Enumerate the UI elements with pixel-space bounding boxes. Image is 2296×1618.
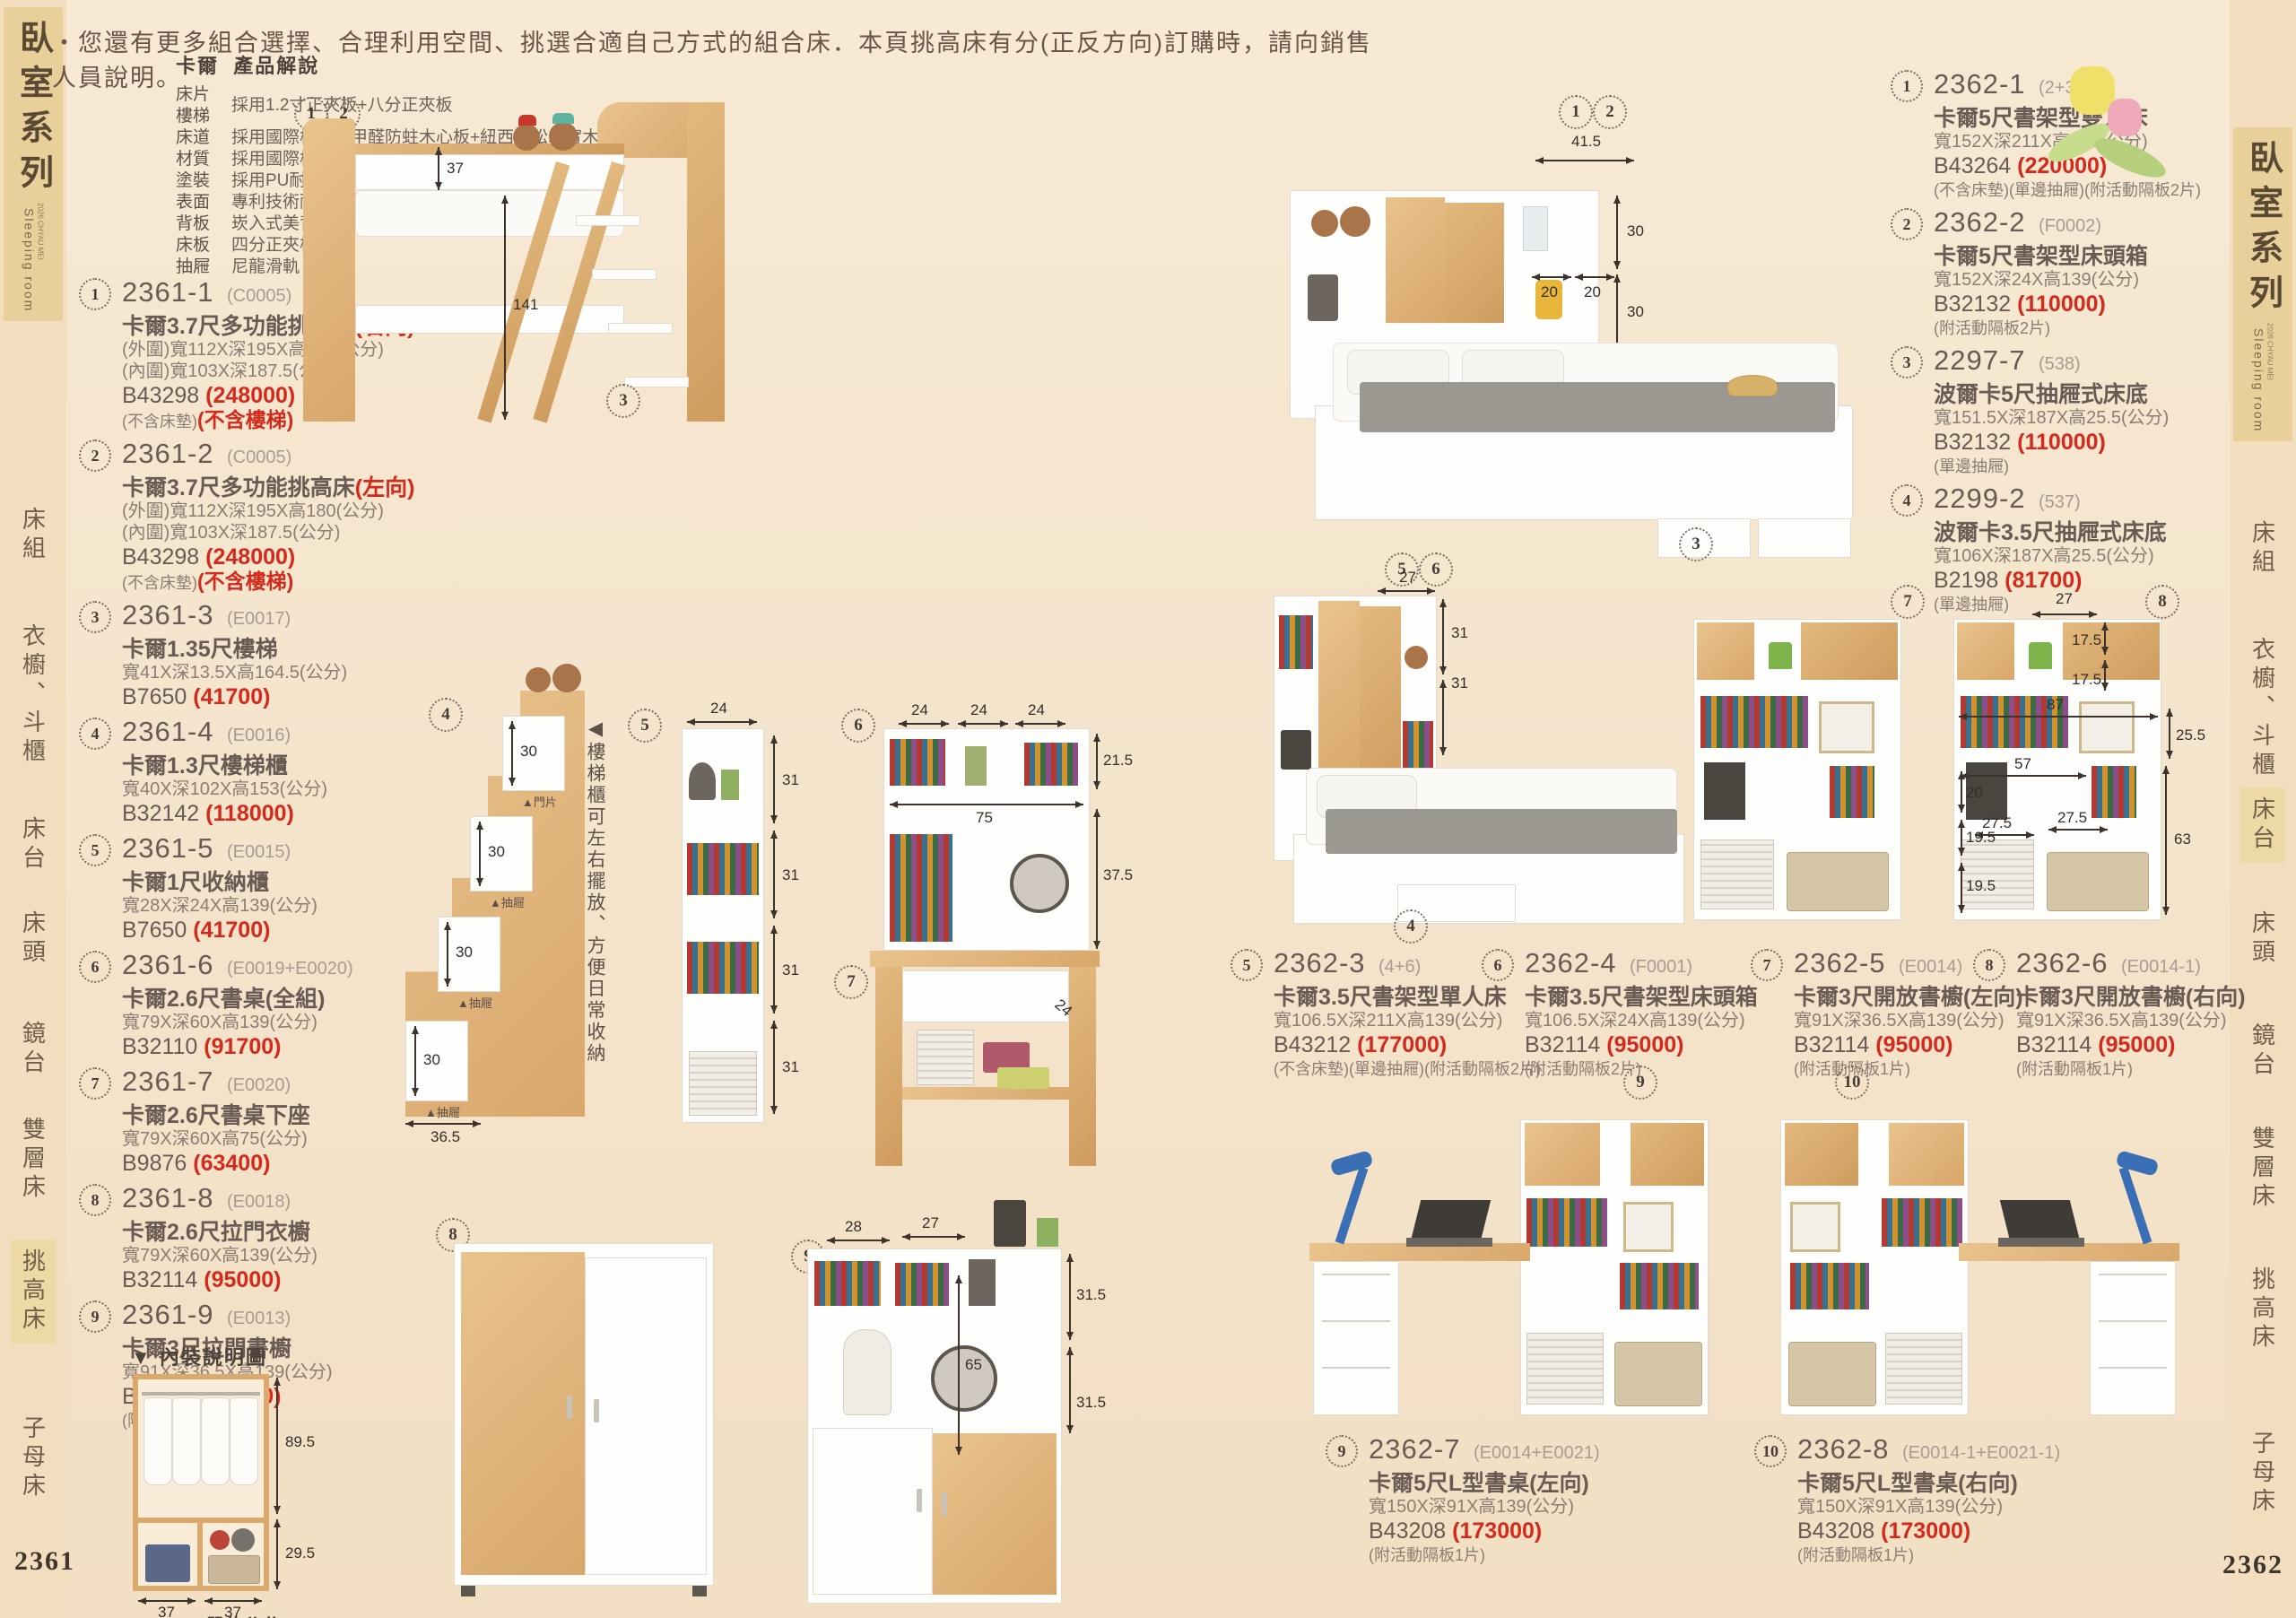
dim-arrow	[1096, 809, 1098, 949]
dim-arrow	[773, 926, 775, 1013]
product-code-line: 2361-3 (E0017)	[122, 599, 347, 637]
ladder-step	[576, 215, 640, 226]
product-ref: (C0005)	[227, 286, 291, 306]
series-subtitle: Sleeping room	[2252, 328, 2266, 432]
sidebar-item-6: 雙層床	[2241, 1117, 2285, 1221]
page-number-left: 2361	[14, 1546, 75, 1577]
laptop-base	[1998, 1238, 2084, 1247]
dim-label: 30	[1627, 303, 1644, 321]
desk-drawer	[902, 970, 1069, 1022]
dim-arrow	[899, 723, 949, 725]
product-item: 2 2361-2 (C0005) 卡爾3.7尺多功能挑高床(左向) (外圍)寬1…	[79, 438, 474, 594]
dim-label: 31	[782, 771, 799, 789]
dim-arrow	[479, 822, 481, 886]
headboard-sliding-door	[1318, 601, 1360, 791]
product-code: 2361-4	[122, 716, 214, 747]
plush-toy	[552, 664, 581, 692]
storage-basket	[1700, 839, 1774, 909]
books	[2092, 766, 2136, 818]
product-code-line: 2297-7 (538)	[1934, 344, 2169, 382]
dim-arrow	[2104, 660, 2106, 691]
drawer-pedestal	[2090, 1261, 2176, 1415]
dim-label: 19.5	[1966, 829, 1996, 847]
dim-label: 30	[488, 843, 505, 861]
product-name: 波爾卡5尺抽屜式床底	[1934, 382, 2169, 407]
headboard-sliding-door	[1386, 197, 1445, 323]
plant	[1037, 1218, 1058, 1247]
ornament	[969, 1259, 996, 1306]
product-dimensions: 寬152X深24X高139(公分)	[1934, 269, 2148, 291]
dim-label: 30	[423, 1051, 440, 1069]
product-code: 2297-7	[1934, 344, 2026, 376]
product-ref: (537)	[2039, 492, 2081, 512]
product-code: 2362-3	[1274, 947, 1366, 979]
product-name: 卡爾1尺收納櫃	[122, 870, 317, 895]
storage-basket	[1961, 839, 2034, 909]
dim-arrow	[1096, 734, 1098, 789]
product-name: 卡爾3尺開放書櫥(右向)	[2016, 985, 2246, 1010]
dim-label: 37	[158, 1604, 175, 1618]
wardrobe-foot	[461, 1586, 475, 1596]
sidebar-right: 臥室系列 Sleeping room 2026 CHYAU MEI 床組衣櫥、斗…	[2230, 0, 2296, 1618]
drawer-pedestal	[1313, 1261, 1399, 1415]
dim-label: 30	[520, 743, 537, 761]
product-ref: (E0013)	[227, 1309, 291, 1328]
plant	[965, 746, 987, 786]
left-arrow-icon: ◀	[585, 718, 605, 742]
bookcase-door	[1697, 622, 1754, 680]
storage-box-blue	[145, 1544, 190, 1582]
drawer-line	[1322, 1274, 1390, 1275]
product-sku-price: B32110 (91700)	[122, 1033, 353, 1060]
storage-box	[1787, 852, 1889, 911]
plush-toy	[1405, 646, 1428, 669]
rolled-item-red	[210, 1530, 230, 1550]
sidebar-item-2: 衣櫥、斗櫃	[2241, 628, 2285, 789]
wardrobe-door-white	[585, 1257, 707, 1575]
books	[1882, 1198, 1962, 1247]
product-code-line: 2361-6 (E0019+E0020)	[122, 949, 353, 987]
page-number-right: 2362	[2222, 1550, 2283, 1580]
storage-box	[2047, 852, 2149, 911]
storage-box-tan	[208, 1555, 260, 1584]
dim-arrow	[827, 1240, 890, 1241]
l-desk-left-figure: 9	[1300, 1058, 1740, 1444]
mannequin-ornament	[843, 1329, 891, 1415]
product-code-line: 2361-5 (E0015)	[122, 832, 317, 870]
bookcase-door	[1801, 622, 1898, 680]
hanging-shirt	[201, 1397, 230, 1485]
down-triangle-icon: ▼	[131, 1346, 152, 1369]
dim-label: 20	[1541, 283, 1558, 301]
loft-guard-rail	[355, 154, 624, 190]
dim-label: 27.5	[2057, 809, 2087, 827]
product-code: 2361-5	[122, 832, 214, 864]
callout-4: 4	[1394, 909, 1428, 944]
books	[687, 942, 759, 994]
product-number-badge: 5	[1231, 949, 1263, 981]
callout-2: 2	[1593, 95, 1627, 129]
sidebar-item-3: 床台	[12, 807, 56, 883]
plush-toy	[549, 122, 578, 151]
plant	[1769, 642, 1792, 669]
photo-frame	[1623, 1202, 1674, 1252]
dim-arrow	[204, 1600, 262, 1602]
product-name: 卡爾5尺L型書桌(左向)	[1369, 1471, 1600, 1496]
callout-6: 6	[1419, 552, 1453, 587]
plant	[721, 770, 739, 800]
product-ref: (E0014)	[1899, 957, 1962, 977]
dim-arrow	[1069, 1347, 1071, 1433]
product-number-badge: 2	[1891, 208, 1923, 240]
storage-basket	[917, 1030, 974, 1085]
hanging-shirt	[230, 1397, 258, 1485]
sidebar-item-1: 床組	[12, 498, 56, 573]
product-sku-price: B32114 (95000)	[1525, 1031, 1758, 1058]
desk-shelf	[902, 1087, 1069, 1100]
product-number-badge: 5	[79, 834, 111, 866]
product-ref: (E0014+E0021)	[1474, 1443, 1600, 1463]
product-ref: (F0002)	[2039, 216, 2101, 236]
dim-arrow	[1961, 775, 2086, 777]
product-number-badge: 7	[79, 1067, 111, 1100]
product-name: 卡爾3.5尺書架型床頭箱	[1525, 985, 1758, 1010]
loft-left-panel	[303, 118, 355, 422]
drawer-line	[2099, 1274, 2167, 1275]
storage-box	[1614, 1342, 1702, 1406]
dim-label: 31.5	[1076, 1286, 1106, 1304]
interior-diagram-title: ▼ 內裝說明圖	[131, 1342, 267, 1370]
dim-label: 31	[1451, 624, 1468, 642]
unit-label: [單位公分]	[199, 1611, 307, 1618]
bookcase-door	[1889, 1123, 1964, 1186]
globe-ornament	[689, 762, 716, 800]
dim-arrow	[773, 831, 775, 918]
loft-top-trim	[355, 144, 624, 154]
bookcase-door	[1525, 1123, 1600, 1186]
drawer-line	[1322, 1367, 1390, 1369]
bookshelf-pair-figure: 7 8 27 17.5 17.5 87 25.5 57 20	[1686, 574, 2206, 951]
dim-label: 31	[782, 961, 799, 979]
dim-arrow	[1015, 723, 1065, 725]
storage-box	[997, 1067, 1049, 1089]
sidebar-item-8: 子母床	[12, 1406, 56, 1510]
dim-label: 17.5	[2072, 631, 2101, 649]
product-dimensions: 寬106X深187X高25.5(公分)	[1934, 545, 2167, 567]
dim-label: 37	[447, 160, 464, 178]
dim-label: 24	[1028, 701, 1045, 719]
product-number-badge: 8	[1973, 949, 2005, 981]
storage-basket	[689, 1051, 757, 1116]
desk-fan	[1010, 854, 1069, 913]
ladder-step	[592, 269, 657, 280]
dim-label: 24	[970, 701, 987, 719]
product-code: 2361-7	[122, 1066, 214, 1097]
step-label: ▲抽屜	[457, 994, 492, 1011]
callout-1: 1	[1559, 95, 1593, 129]
callout-8: 8	[2145, 585, 2179, 619]
dim-label: 19.5	[1966, 877, 1996, 895]
books	[814, 1261, 881, 1306]
loft-right-post	[687, 102, 725, 422]
dim-arrow	[1616, 274, 1618, 352]
dim-arrow	[276, 1519, 278, 1589]
dim-arrow	[504, 196, 506, 420]
tulip-leaf	[2090, 131, 2170, 186]
dim-label: 37.5	[1103, 866, 1133, 884]
dim-label: 21.5	[1103, 752, 1133, 770]
dim-label: 17.5	[2072, 671, 2101, 689]
product-sku-price: B32142 (118000)	[122, 800, 327, 827]
product-name: 卡爾5尺L型書桌(右向)	[1797, 1471, 2060, 1496]
product-dimensions: 寬28X深24X高139(公分)	[122, 895, 317, 917]
dim-arrow	[1378, 590, 1435, 592]
tulip-decoration	[2045, 61, 2179, 213]
plush-toy	[1340, 206, 1370, 237]
product-number-badge: 2	[79, 439, 111, 472]
product-item: 9 2362-7 (E0014+E0021) 卡爾5尺L型書桌(左向) 寬150…	[1326, 1433, 1600, 1566]
storage-basket	[1885, 1333, 1962, 1405]
sidebar-item-4: 床頭	[2241, 901, 2285, 977]
dim-label: 75	[976, 809, 993, 827]
product-number-badge: 1	[1891, 70, 1923, 102]
dim-arrow	[438, 147, 439, 190]
product-dimensions: 寬151.5X深187X高25.5(公分)	[1934, 407, 2169, 429]
product-number-badge: 9	[79, 1300, 111, 1333]
books	[1790, 1263, 1869, 1309]
product-code-line: 2362-4 (F0001)	[1525, 947, 1758, 985]
product-ref: (E0017)	[227, 609, 291, 629]
dim-label: 31	[1451, 674, 1468, 692]
product-2362-7: 9 2362-7 (E0014+E0021) 卡爾5尺L型書桌(左向) 寬150…	[1326, 1433, 1600, 1571]
dim-label: 27	[922, 1214, 939, 1232]
bookcase-door	[1785, 1123, 1858, 1186]
loft-upper-deck	[355, 190, 624, 237]
headboard-sliding-door	[1360, 606, 1401, 791]
dim-arrow	[1442, 680, 1444, 755]
product-code: 2361-8	[122, 1182, 214, 1213]
series-title: 臥室系列	[9, 20, 58, 199]
product-dimensions: 寬79X深60X高139(公分)	[122, 1245, 317, 1266]
books	[1024, 743, 1078, 786]
wardrobe-foot	[692, 1586, 707, 1596]
callout-3: 3	[606, 384, 640, 418]
desk-figure: 6 24 24 24 21.5 75 37.5 7 24	[834, 700, 1121, 1175]
dim-label: 27	[1399, 569, 1416, 587]
series-edition: 2026 CHYAU MEI	[2266, 323, 2274, 432]
product-ref: (C0005)	[227, 448, 291, 467]
tulip-petal-pink	[2108, 99, 2142, 136]
callout-9: 9	[1623, 1066, 1657, 1100]
plant	[2029, 642, 2052, 669]
dim-label: 36.5	[430, 1128, 460, 1146]
desk-right-leg	[1069, 967, 1096, 1166]
hanging-shirt	[172, 1397, 201, 1485]
dim-label: 28	[845, 1218, 862, 1236]
product-notes: (不含床墊)(不含樓梯)	[122, 570, 414, 594]
product-ref: (E0015)	[227, 842, 291, 862]
dim-arrow	[447, 922, 448, 987]
product-code: 2361-2	[122, 438, 214, 469]
product-dimensions: 寬106.5X深24X高139(公分)	[1525, 1010, 1758, 1031]
product-sku-price: B9876 (63400)	[122, 1150, 310, 1177]
bookcase-door	[1957, 622, 2014, 680]
product-dimensions: 寬150X深91X高139(公分)	[1797, 1496, 2060, 1518]
straw-hat	[1727, 375, 1778, 396]
dim-arrow	[2165, 766, 2167, 915]
loft-bed-figure: 1 2 37 141 3	[287, 90, 735, 431]
wardrobe-divider	[197, 1523, 203, 1586]
series-edition: 2026 CHYAU MEI	[37, 203, 45, 312]
product-ref: (4+6)	[1378, 957, 1421, 977]
product-ref: (F0001)	[1630, 957, 1692, 977]
dim-label: 65	[965, 1356, 982, 1374]
rolled-item-gray	[231, 1528, 255, 1552]
sidebar-left: 臥室系列 Sleeping room 2026 CHYAU MEI 床組衣櫥、斗…	[0, 0, 66, 1618]
dim-label: 24	[710, 700, 727, 718]
door-handle	[594, 1399, 599, 1422]
product-code: 2362-4	[1525, 947, 1617, 979]
product-sku-price: B32114 (95000)	[2016, 1031, 2246, 1058]
product-sku-price: B43208 (173000)	[1797, 1518, 2060, 1544]
product-sku-price: B32132 (110000)	[1934, 429, 2169, 456]
dim-arrow	[405, 1123, 481, 1125]
product-number-badge: 7	[1751, 949, 1783, 981]
dim-arrow	[1961, 863, 1962, 913]
sidebar-item-7: 挑高床	[2241, 1257, 2285, 1361]
product-dimensions: 寬79X深60X高75(公分)	[122, 1128, 310, 1150]
dim-label: 30	[1627, 222, 1644, 240]
product-code-line: 2362-6 (E0014-1)	[2016, 947, 2246, 985]
storage-basket	[1526, 1333, 1604, 1405]
product-ref: (E0020)	[227, 1075, 291, 1095]
single-bed-figure: 5 6 27 31 31 4	[1263, 538, 1711, 951]
product-code: 2362-1	[1934, 68, 2026, 100]
books	[687, 843, 759, 895]
product-code: 2362-6	[2016, 947, 2109, 979]
spec-title: 卡爾 產品解說	[176, 50, 750, 79]
desk-left-leg	[875, 967, 902, 1166]
product-number-badge: 6	[79, 951, 111, 983]
dim-label: 141	[513, 296, 538, 314]
product-name: 卡爾2.6尺書桌下座	[122, 1103, 310, 1128]
product-name: 波爾卡3.5尺抽屜式床底	[1934, 520, 2167, 545]
dim-label: 57	[2014, 755, 2031, 773]
dim-label: 89.5	[285, 1433, 315, 1451]
product-name: 卡爾1.3尺樓梯櫃	[122, 753, 327, 779]
product-dimensions: 寬91X深36.5X高139(公分)	[2016, 1010, 2246, 1031]
callout-7: 7	[1891, 585, 1925, 619]
product-dimensions: (外圍)寬112X深195X高180(公分)(內圍)寬103X深187.5(公分…	[122, 500, 414, 544]
dim-label: 31	[782, 1058, 799, 1076]
ladder-note: ◀樓梯櫃可左右擺放、方便日常收納	[581, 718, 608, 1065]
desk-top	[870, 951, 1100, 967]
dim-arrow	[890, 804, 1083, 805]
sidebar-item-7: 挑高床	[12, 1240, 56, 1344]
narrow-cabinet-figure: 5 24 31 31 31 31	[628, 700, 807, 1130]
product-sku-price: B43208 (173000)	[1369, 1518, 1600, 1544]
step-label: ▲抽屜	[425, 1103, 460, 1120]
plush-toy	[526, 667, 551, 692]
dim-label: 29.5	[285, 1544, 315, 1562]
callout-4: 4	[429, 698, 463, 732]
product-code-line: 2361-8 (E0018)	[122, 1182, 317, 1220]
product-sku-price: B32114 (95000)	[122, 1266, 317, 1293]
dim-label: 25.5	[2176, 726, 2205, 744]
books	[1700, 696, 1808, 748]
dim-arrow	[511, 721, 513, 786]
dim-arrow	[1575, 276, 1614, 278]
desk-lamp-head	[1329, 1150, 1373, 1177]
product-notes: (附活動隔板1片)	[1369, 1544, 1600, 1566]
photo-frame	[1281, 730, 1311, 770]
ladder-step	[608, 323, 673, 334]
dim-arrow	[687, 721, 757, 723]
photo-frame	[994, 1200, 1026, 1247]
books	[1620, 1263, 1699, 1309]
fan-ornament	[931, 1345, 997, 1412]
door-handle	[917, 1489, 922, 1512]
drawer-line	[1322, 1320, 1390, 1322]
drawer-line	[2099, 1320, 2167, 1322]
drawer-line	[2099, 1367, 2167, 1369]
books	[1279, 615, 1313, 669]
product-ref: (538)	[2039, 354, 2081, 374]
sidebar-item-6: 雙層床	[12, 1108, 56, 1212]
sidebar-item-5: 鏡台	[2241, 1013, 2285, 1089]
dim-arrow	[1535, 160, 1634, 161]
product-ref: (E0016)	[227, 726, 291, 745]
loft-mid-rail	[355, 305, 624, 334]
product-code-line: 2299-2 (537)	[1934, 483, 2167, 520]
product-notes: (附活動隔板1片)	[1797, 1544, 2060, 1566]
plush-hat	[552, 113, 574, 124]
callout-6: 6	[841, 709, 875, 743]
headboard-sliding-door	[1445, 203, 1504, 323]
dim-arrow	[1532, 276, 1571, 278]
series-banner-right: 臥室系列 Sleeping room 2026 CHYAU MEI	[2233, 127, 2292, 441]
product-code-line: 2361-7 (E0020)	[122, 1066, 310, 1103]
product-dimensions: 寬150X深91X高139(公分)	[1369, 1496, 1600, 1518]
product-2362-8: 10 2362-8 (E0014-1+E0021-1) 卡爾5尺L型書桌(右向)…	[1754, 1433, 2060, 1571]
product-sku-price: B43298 (248000)	[122, 544, 414, 570]
dim-label: 31.5	[1076, 1394, 1106, 1412]
dim-arrow	[2169, 709, 2170, 759]
blanket	[1326, 809, 1677, 854]
dim-arrow	[1961, 820, 1962, 856]
dim-arrow	[1442, 599, 1444, 674]
callout-10: 10	[1835, 1066, 1869, 1100]
catalog-page: 臥室系列 Sleeping room 2026 CHYAU MEI 床組衣櫥、斗…	[0, 0, 2296, 1618]
dim-label: 63	[2174, 831, 2191, 848]
dim-label: 87	[2047, 696, 2064, 714]
sidebar-item-3: 床台	[2241, 787, 2285, 863]
product-ref: (E0014-1+E0021-1)	[1902, 1443, 2060, 1463]
desk-lamp-arm	[1335, 1167, 1369, 1245]
series-subtitle: Sleeping room	[22, 208, 37, 312]
plush-cap	[518, 115, 536, 126]
product-sku-price: B32132 (110000)	[1934, 291, 2148, 318]
product-number-badge: 3	[1891, 346, 1923, 378]
sliding-door-white	[813, 1428, 933, 1595]
product-ref: (E0018)	[227, 1192, 291, 1212]
product-code: 2362-5	[1794, 947, 1886, 979]
dim-arrow	[1616, 196, 1618, 269]
dim-arrow	[414, 1026, 416, 1096]
ladder-step	[624, 377, 689, 387]
product-dimensions: 寬41X深13.5X高164.5(公分)	[122, 662, 347, 683]
sliding-bookcase-figure: 9 28 27 31.5 65 31.5	[780, 1193, 1103, 1614]
